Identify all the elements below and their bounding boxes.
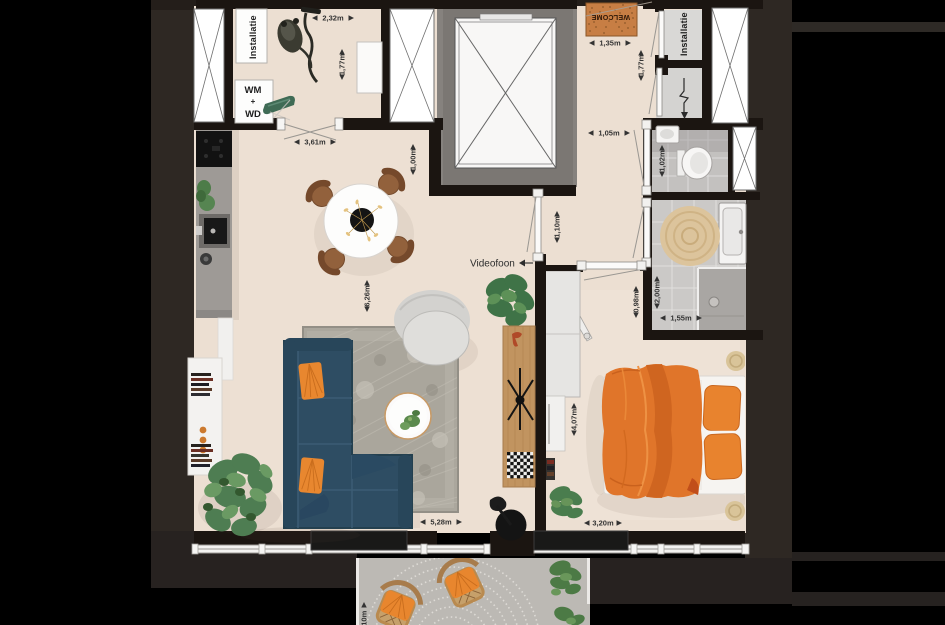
svg-text:3,61m: 3,61m [304,138,326,147]
svg-text:2,32m: 2,32m [322,14,344,23]
svg-text:WD: WD [245,109,261,120]
svg-text:0,98m: 0,98m [632,291,641,313]
svg-text:Installatie: Installatie [679,12,689,56]
svg-text:4,07m: 4,07m [570,409,579,431]
svg-text:Installatie: Installatie [248,15,258,59]
svg-text:2,00m: 2,00m [653,282,662,304]
svg-text:1,10m: 1,10m [553,216,562,238]
svg-text:2,10m: 2,10m [360,610,369,625]
svg-text:5,28m: 5,28m [430,518,452,527]
svg-text:6,26m: 6,26m [363,285,372,307]
svg-text:WM: WM [245,85,262,96]
svg-text:1,02m: 1,02m [658,150,667,172]
svg-text:1,77m: 1,77m [338,54,347,76]
svg-text:3,20m: 3,20m [592,519,614,528]
svg-text:1,77m: 1,77m [637,55,646,77]
svg-text:1,35m: 1,35m [599,39,621,48]
svg-text:Videofoon: Videofoon [470,259,515,270]
svg-text:1,55m: 1,55m [670,314,692,323]
svg-text:+: + [251,97,256,106]
svg-text:1,00m: 1,00m [409,149,418,171]
svg-text:1,05m: 1,05m [598,129,620,138]
